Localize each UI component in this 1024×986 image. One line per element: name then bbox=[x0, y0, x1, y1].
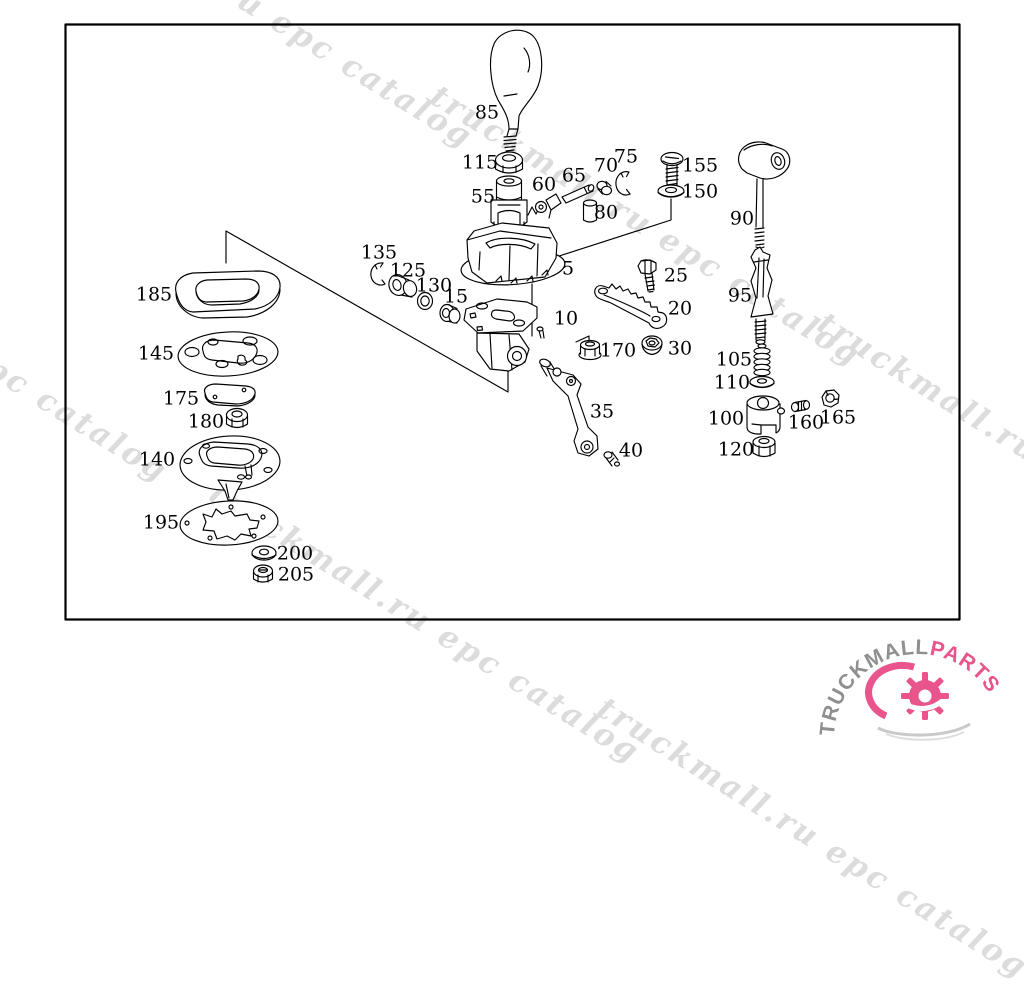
part-label-155: 155 bbox=[682, 157, 718, 176]
part-label-55: 55 bbox=[471, 188, 495, 207]
part-label-40: 40 bbox=[619, 442, 643, 461]
gear-icon bbox=[901, 672, 949, 720]
part-label-20: 20 bbox=[668, 300, 692, 319]
part-label-95: 95 bbox=[728, 287, 752, 306]
part-label-85: 85 bbox=[475, 104, 499, 123]
part-label-10: 10 bbox=[554, 310, 578, 329]
part-label-170: 170 bbox=[600, 342, 636, 361]
part-label-35: 35 bbox=[590, 403, 614, 422]
part-label-195: 195 bbox=[143, 514, 179, 533]
part-label-80: 80 bbox=[594, 204, 618, 223]
part-label-60: 60 bbox=[532, 176, 556, 195]
part-label-105: 105 bbox=[716, 351, 752, 370]
part-label-5: 5 bbox=[562, 260, 574, 279]
part-label-120: 120 bbox=[718, 441, 754, 460]
part-label-75: 75 bbox=[614, 148, 638, 167]
part-label-145: 145 bbox=[138, 345, 174, 364]
part-label-180: 180 bbox=[188, 413, 224, 432]
catalog-page: { "diagram": { "border_color": "#000000"… bbox=[0, 0, 1024, 750]
part-label-165: 165 bbox=[820, 409, 856, 428]
part-label-150: 150 bbox=[682, 183, 718, 202]
part-label-90: 90 bbox=[730, 210, 754, 229]
part-label-175: 175 bbox=[163, 390, 199, 409]
part-label-30: 30 bbox=[668, 340, 692, 359]
part-label-200: 200 bbox=[277, 545, 313, 564]
part-label-15: 15 bbox=[444, 288, 468, 307]
part-label-25: 25 bbox=[664, 267, 688, 286]
part-label-110: 110 bbox=[714, 374, 750, 393]
part-label-185: 185 bbox=[136, 286, 172, 305]
logo-text-parts: PARTS bbox=[928, 637, 1004, 697]
truckmall-parts-logo: TRUCKMALLPARTS bbox=[818, 634, 1018, 750]
part-label-115: 115 bbox=[462, 154, 498, 173]
part-label-160: 160 bbox=[788, 414, 824, 433]
part-label-140: 140 bbox=[139, 451, 175, 470]
part-label-100: 100 bbox=[708, 410, 744, 429]
part-label-205: 205 bbox=[278, 566, 314, 585]
part-label-65: 65 bbox=[562, 167, 586, 186]
